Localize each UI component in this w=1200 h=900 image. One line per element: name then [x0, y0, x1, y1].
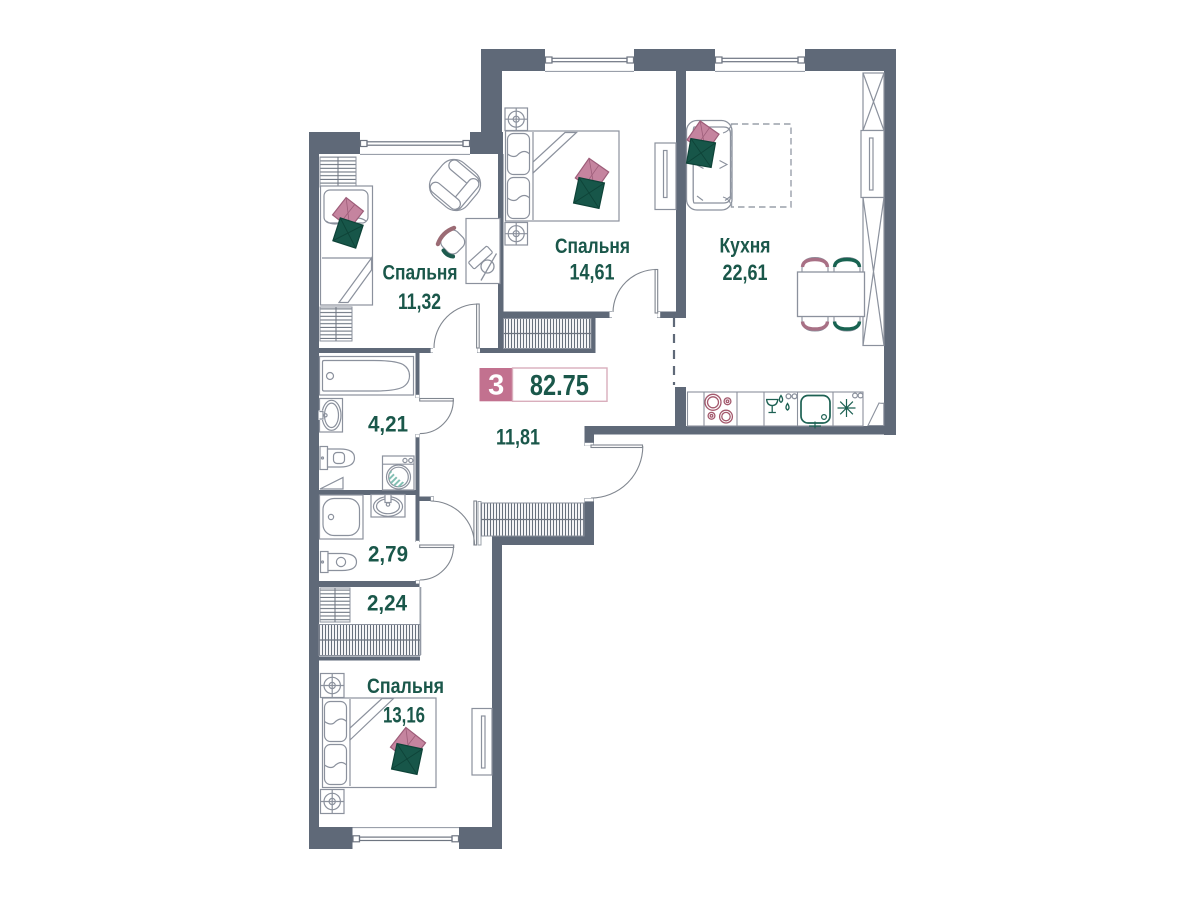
svg-text:3: 3 — [488, 370, 504, 402]
svg-text:4,21: 4,21 — [368, 412, 408, 437]
svg-text:11,81: 11,81 — [496, 425, 540, 450]
svg-text:Спальня: Спальня — [367, 674, 444, 698]
svg-text:Кухня: Кухня — [720, 234, 771, 258]
svg-text:2,79: 2,79 — [368, 542, 408, 567]
svg-text:14,61: 14,61 — [570, 260, 615, 285]
svg-text:Спальня: Спальня — [555, 234, 630, 258]
svg-text:82.75: 82.75 — [530, 370, 589, 402]
svg-text:22,61: 22,61 — [723, 260, 768, 285]
svg-text:Спальня: Спальня — [383, 261, 458, 285]
svg-text:11,32: 11,32 — [398, 289, 441, 314]
svg-text:13,16: 13,16 — [383, 703, 425, 728]
svg-text:2,24: 2,24 — [367, 591, 408, 616]
